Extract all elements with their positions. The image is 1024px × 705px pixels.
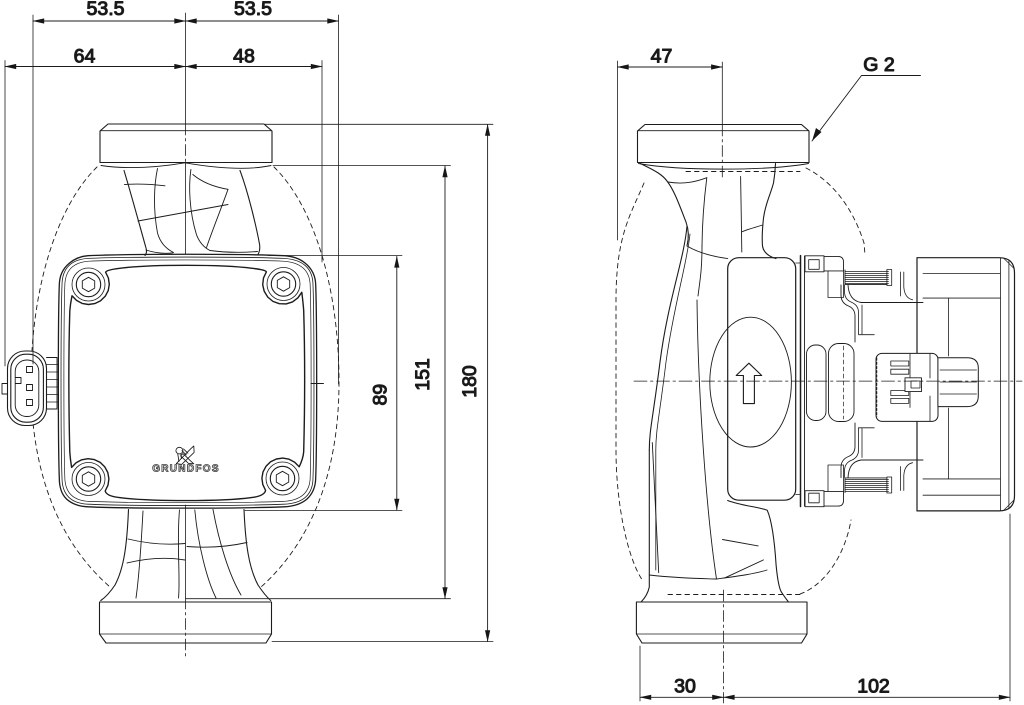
svg-text:102: 102 (857, 676, 890, 698)
svg-text:53.5: 53.5 (87, 0, 125, 20)
svg-text:180: 180 (459, 365, 481, 398)
svg-text:151: 151 (412, 358, 434, 391)
svg-text:47: 47 (651, 46, 673, 68)
svg-text:53.5: 53.5 (234, 0, 272, 20)
svg-text:64: 64 (74, 46, 96, 68)
svg-text:GRUNDFOS: GRUNDFOS (152, 464, 220, 475)
svg-text:48: 48 (233, 46, 255, 68)
svg-text:30: 30 (674, 676, 696, 698)
svg-text:G 2: G 2 (863, 54, 894, 76)
svg-text:89: 89 (369, 384, 391, 406)
